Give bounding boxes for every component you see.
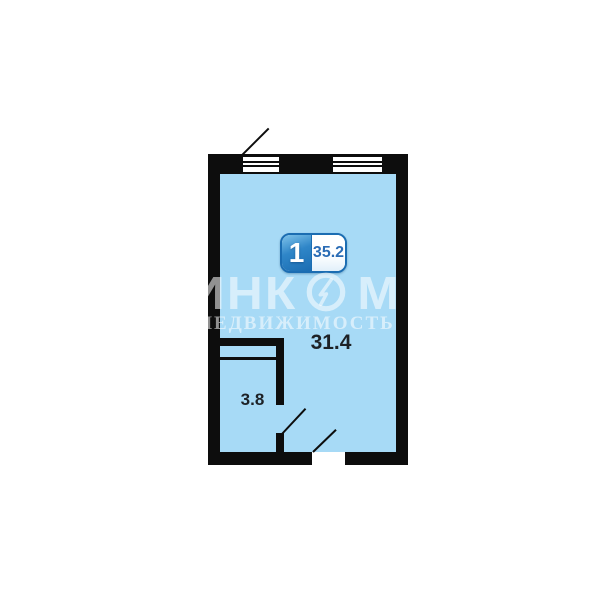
window-end-tick	[325, 156, 333, 172]
exterior-wall-bottom-left-segment	[208, 452, 312, 465]
window-2	[325, 154, 390, 174]
exterior-wall-top-right-segment	[390, 154, 408, 174]
apartment-interior-fill	[220, 174, 396, 452]
main-room-area-label: 31.4	[303, 332, 359, 353]
exterior-wall-top-left-segment	[208, 154, 235, 174]
exterior-wall-left	[208, 154, 220, 465]
window-frame-line	[325, 154, 390, 157]
exterior-wall-top-middle-segment	[287, 154, 325, 174]
window-glass-line	[325, 161, 390, 163]
total-area-badge: 35.2	[312, 235, 345, 271]
bathroom-top-wall	[220, 338, 284, 346]
window-end-tick	[279, 156, 287, 172]
bathroom-partition-wall-stub	[276, 433, 284, 452]
window-glass-line	[325, 165, 390, 167]
floorplan-canvas: 1 35.2 31.4 3.8 ИНК М НЕДВИЖИМОСТЬ	[0, 0, 600, 600]
room-count-badge: 1	[282, 235, 312, 271]
bathroom-area-label: 3.8	[230, 391, 275, 408]
bathroom-fixture-line	[220, 357, 276, 360]
window-end-tick	[382, 156, 390, 172]
window-frame-line	[325, 172, 390, 175]
exterior-wall-right	[396, 154, 408, 465]
bathroom-partition-wall	[276, 338, 284, 405]
unit-info-badge: 1 35.2	[280, 233, 347, 273]
window-1	[235, 154, 287, 174]
exterior-wall-bottom-right-segment	[345, 452, 408, 465]
